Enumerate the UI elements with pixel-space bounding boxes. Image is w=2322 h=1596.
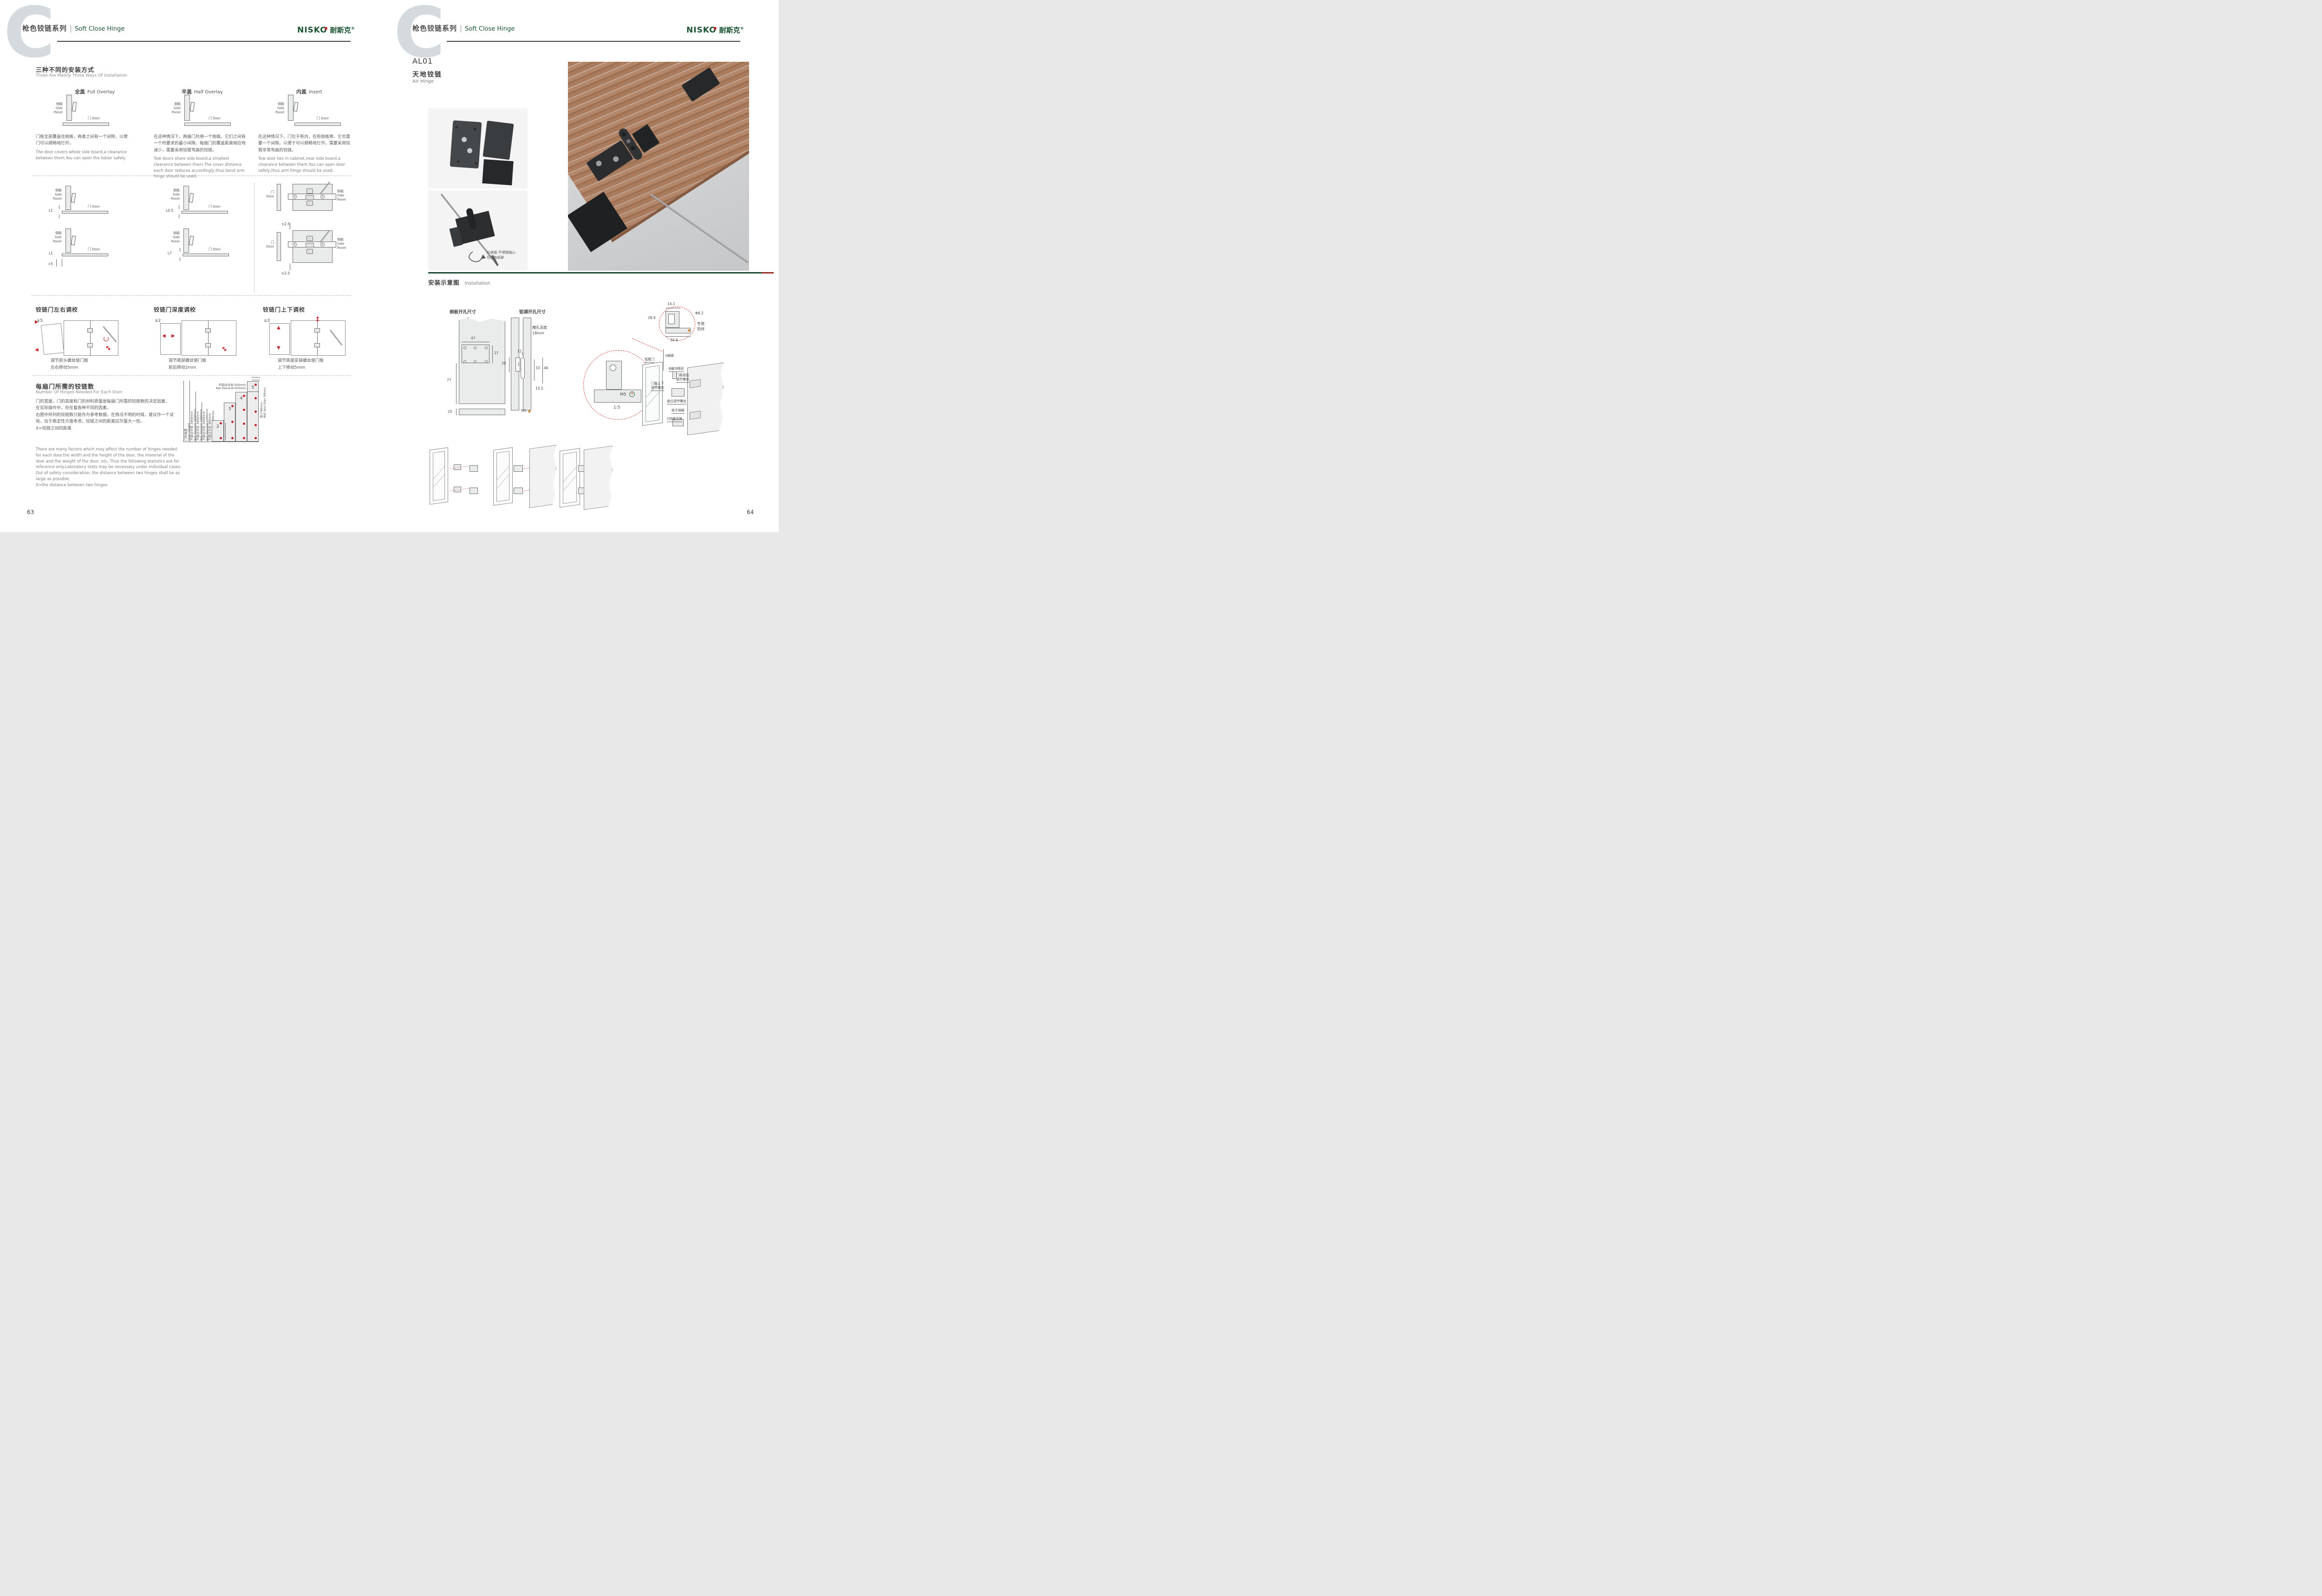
installation-title-cn: 安装示意图 (428, 279, 460, 286)
series-title-cn: 枪色铰链系列 (412, 24, 457, 33)
door-cn: 门 (209, 117, 212, 120)
hinge-count-desc-en: There are many factors which may affect … (36, 447, 183, 488)
label-text: B缓冲阻尼 (669, 367, 684, 371)
hinge-recess (690, 379, 701, 388)
brand-logo: NISKO耐斯克® (686, 25, 744, 35)
dim-tick (62, 259, 62, 267)
door-label: 门 Door (88, 205, 100, 209)
adjust-block-depth: 铰链门深度调校 ±2 ◀ ▶ ↔ 调节尾部螺丝使门板 前后移动2mm (154, 306, 263, 373)
alu-frame-door-shape (642, 362, 663, 426)
hinge-plate (87, 343, 93, 347)
side-panel-label: 侧板SidePanel (337, 189, 346, 202)
plate-hole (455, 126, 458, 129)
hinge-icon (71, 236, 76, 246)
adjust-caption-2: 左右移动5mm (51, 365, 78, 371)
door-frame (493, 447, 513, 506)
door-width-note: 不超过计划 600mm Not bevond 600mm (211, 384, 246, 390)
steel-rod (651, 195, 748, 262)
desc-en: The door covers whole side board,a clear… (36, 150, 129, 162)
way-name-cn: 全盖 (75, 89, 85, 95)
side-panel-shape (183, 186, 189, 210)
label-cover-screw: 盖位调节螺丝 (667, 399, 686, 404)
door-cn: 门 (317, 117, 320, 120)
door-en: Door (213, 248, 221, 251)
hinge-plate (205, 343, 211, 347)
dim-line (542, 358, 543, 384)
bar-value: 4 (240, 396, 243, 401)
desc-cn: 门板全部覆盖住侧板，两者之间有一个间隙，以便门可以顺畅地打开。 (36, 134, 129, 147)
rod-highlight (651, 194, 748, 262)
hinge-dot (243, 409, 245, 411)
dim-diagram-l7: 侧板SidePanel L7 门 Door (154, 228, 251, 275)
hinge-base-plate (450, 120, 482, 169)
dim-62: Φ6.2 (695, 311, 704, 315)
dim-tick (59, 215, 59, 218)
cabinet-divider (90, 321, 91, 355)
dashed-connector (522, 468, 529, 469)
arrow-left-icon: ◀ (35, 347, 39, 352)
offset-dim-plus: +5 (48, 262, 53, 266)
plate-tab (307, 201, 313, 206)
hinge-dot (254, 384, 257, 386)
label-text: 盖位调节螺丝 (667, 399, 686, 404)
bar-value: 2 (216, 424, 219, 429)
cabinet-shape (64, 320, 118, 356)
desc-cn-line: 门的宽度，门的高度和门的材料质量是每扇门所需的铰链数的决定因素。 (36, 398, 181, 405)
label-cabinet-side: 柜子侧板 (672, 409, 685, 414)
plate-slot (306, 195, 314, 200)
rod-overlay (568, 62, 749, 271)
green-divider (428, 272, 774, 274)
label-damper: B缓冲阻尼 (669, 367, 684, 372)
side-panel-label: 侧板 Side Panel (269, 102, 284, 114)
crosshair-icon: + (629, 391, 635, 397)
profile-hole (610, 365, 616, 371)
dim-diagram-l1: 侧板SidePanel L1 门 Door (36, 186, 133, 225)
hinge-icon (189, 236, 194, 246)
vertical-arrow-icon: ↕ (315, 316, 320, 323)
door-label: 门Door (263, 241, 274, 249)
dim-arrow (462, 342, 489, 342)
bar-4-hinges: 4 (235, 392, 247, 442)
chrome-screw-icon (467, 148, 472, 153)
label-front-back-screw: 门板前后 调节螺丝 (676, 373, 689, 383)
product-photo-installed (568, 62, 749, 271)
watermark-letter: C (4, 0, 55, 68)
arrow-down-icon: ▼ (277, 345, 280, 351)
desc-en-line: X=the distance between two hinges (36, 482, 183, 489)
adjust-caption-1: 调节底座安装螺丝使门板 (278, 358, 324, 364)
door-cn: 门 (88, 205, 91, 208)
ways-title-cn: 三种不同的安装方式 (36, 65, 94, 74)
column-divider (254, 183, 254, 293)
hinge-count-chart: 门的高度 Door height 不超过计划 2400mm Not bevond… (182, 376, 265, 447)
section-divider (32, 375, 351, 376)
side-panel-shape (66, 95, 72, 121)
hinge-count-title-en: Number Of Hinges Needed For Each Door (36, 390, 123, 395)
slot-note-line2: 18mm (532, 331, 547, 336)
hinge-dot (220, 422, 222, 424)
hinge-recess (690, 410, 701, 419)
hinge-dot (243, 395, 245, 397)
door-label: 门 Door (317, 117, 329, 121)
dim-tick (179, 215, 179, 218)
hinge-part (470, 465, 478, 472)
series-title-en: Soft Close Hinge (75, 26, 124, 33)
desc-cn: 在这种情况下，门位于柜内，在柜侧板旁。它也需要一个间隙。以便于可以顺畅地打开。需… (258, 134, 351, 154)
dashed-connector (522, 490, 529, 491)
bar-value: 3 (228, 407, 231, 411)
dim-tick (180, 257, 180, 261)
door-shape (160, 323, 181, 355)
dim-289: 28.9 (648, 316, 656, 320)
strip-shape (459, 409, 505, 415)
side-panel-shape (65, 228, 71, 253)
catalog-spread: C 枪色铰链系列|Soft Close Hinge NISKO耐斯克® 三种不同… (0, 0, 779, 532)
door-cn: 门 (209, 248, 212, 251)
door-en: Door (92, 248, 100, 251)
brand-logo: NISKO耐斯克® (297, 25, 355, 35)
desc-en: Tow door lies in cabinet,near side board… (258, 156, 351, 174)
cabinet-divider (208, 321, 209, 355)
dim-1: 1 (517, 362, 520, 366)
side-panel-cn: 侧板 (47, 231, 62, 235)
adjust-title: 铰链门左右调校 (36, 306, 78, 313)
plate-tab (307, 236, 313, 241)
door-shape (182, 211, 228, 214)
label-text: C铰链主体 (667, 417, 682, 421)
plate-diagram-top: 门Door + + 侧板SidePanel (263, 184, 351, 212)
registered-mark: ® (351, 26, 355, 31)
drill-hole (463, 360, 466, 363)
pin-shape (663, 349, 664, 371)
logo-cn: 耐斯克 (719, 26, 740, 34)
side-panel-en1: Side (47, 193, 62, 197)
way-column-insert: 内盖 Insert 侧板 Side Panel 门 Door (258, 86, 351, 129)
dim-line (492, 345, 493, 363)
door-en: Door (263, 245, 274, 249)
adjust-caption-2: 前后移动2mm (169, 365, 196, 371)
side-panel-en1: Side (165, 235, 180, 240)
assembly-step-3 (560, 445, 625, 515)
label-text: 柜子侧板 (672, 409, 685, 413)
door-label: 门 Door (209, 248, 221, 252)
logo-wordmark: NISKO (686, 26, 717, 35)
door-shape (183, 254, 229, 256)
door-label: 门Door (263, 190, 274, 199)
side-panel-cn: 侧板 (48, 102, 63, 106)
hinge-dot (231, 437, 234, 439)
side-panel-cn: 侧板 (47, 189, 62, 193)
side-panel-label: 侧板SidePanel (165, 189, 180, 201)
dim-m5: M5 (521, 409, 526, 413)
dim-27: 27 (494, 351, 499, 355)
adjust-title: 铰链门上下调校 (263, 306, 305, 313)
side-panel-en1: Side (337, 194, 346, 198)
side-panel-en1: Side (47, 235, 62, 240)
label-alu-frame-door: 铝框门 (645, 358, 654, 363)
edge-en: Not less than 90mm (263, 387, 267, 418)
door-cn: 门 (263, 241, 274, 245)
plate-tab (307, 249, 313, 254)
plate-hole (475, 162, 477, 165)
hinge-dot (254, 424, 257, 426)
side-panel-en1: Side (337, 242, 346, 246)
logo-wordmark: NISKO (297, 26, 327, 35)
drill-hole (485, 360, 488, 363)
label-pin: A插销 (665, 354, 674, 358)
series-title-cn: 枪色铰链系列 (22, 24, 67, 33)
side-panel-label: 侧板 Side Panel (48, 102, 63, 114)
way-name-cn: 半盖 (182, 89, 192, 95)
offset-dim: L1 (49, 208, 53, 213)
door-width-en: Not bevond 600mm (211, 387, 246, 390)
side-panel-label: 侧板SidePanel (165, 231, 180, 243)
adjust-caption-1: 调节尾部螺丝使门板 (169, 358, 206, 364)
alu-note: 专用 铝材 (697, 321, 704, 332)
hinge-icon (190, 102, 195, 112)
cabinet-divider (317, 321, 318, 355)
door-shape (41, 323, 64, 355)
product-name-en: Air Hinge (412, 79, 434, 84)
slot-note-line1: 槽孔深度 (532, 325, 547, 331)
offset-dim: L1 (49, 251, 53, 255)
door-label: 门 Door (209, 205, 221, 209)
door-shape (294, 123, 341, 126)
adjust-title: 铰链门深度调校 (154, 306, 196, 313)
hinge-dot (231, 421, 234, 423)
slot-depth-note: 槽孔深度 18mm (532, 325, 547, 336)
m5-label: M5 (620, 392, 626, 397)
page-number-right: 64 (747, 509, 754, 515)
pin-dot (688, 329, 690, 332)
side-panel-en2: Panel (337, 198, 346, 202)
logo-cn: 耐斯克 (330, 26, 351, 34)
label-text: 铝框门 (645, 358, 654, 362)
hinge-icon (294, 102, 299, 112)
side-panel-en2: Panel (48, 111, 63, 115)
desc-en-line: Out of safety consideration, the distanc… (36, 470, 183, 482)
door-label: 门 Door (209, 117, 221, 121)
dim-12: 12 (517, 349, 522, 353)
plate-tab (307, 189, 313, 194)
hinge-plate (87, 328, 93, 332)
plate-diagram-adjust: ±2.5 门Door + + 侧板SidePanel ±2.5 (263, 222, 351, 277)
tolerance-label: ±2 (264, 319, 270, 323)
label-text: A插销 (665, 354, 674, 358)
door-shape (63, 123, 109, 126)
dim-33: 33 (535, 366, 540, 370)
hinge-count-title-cn: 每扇门所需的铰链数 (36, 382, 94, 391)
assembly-step-1 (430, 445, 490, 515)
door-width-arrow (248, 391, 258, 392)
header-rule (447, 41, 740, 42)
dim-tick (179, 205, 179, 209)
exploded-diagram: 铝框门 A插销 B缓冲阻尼 门板前后 调节螺丝 门板上下 调节螺丝 盖位调节螺丝… (640, 349, 775, 442)
way-desc-full-overlay: 门板全部覆盖住侧板，两者之间有一个间隙，以便门可以顺畅地打开。 The door… (36, 134, 129, 161)
door-label: 门 Door (88, 248, 100, 252)
hinge-dot (243, 437, 245, 439)
side-panel-cn: 侧板 (337, 189, 346, 194)
door-en: Door (213, 205, 221, 208)
glass-pane (433, 451, 445, 501)
door-cn: 门 (88, 248, 91, 251)
offset-dim: L0.5 (166, 208, 173, 213)
side-panel-label: 侧板SidePanel (47, 189, 62, 201)
label-up-down-screw: 门板上下 调节螺丝 (651, 382, 664, 391)
side-panel-en1: Side (48, 106, 63, 111)
photo-note: 升级版·不锈钢轴心 可自由拆卸 (487, 250, 527, 261)
screw-icon: + (293, 242, 297, 247)
hinge-body-shape (672, 388, 685, 397)
cabinet-side-shape (687, 363, 724, 436)
arrow-right-icon: ▶ (35, 319, 39, 325)
adjust-block-ud: 铰链门上下调校 ±2 ▲ ▼ ↕ 调节底座安装螺丝使门板 上下移动5mm (263, 306, 372, 373)
ways-title-en: Three Are Mainly Three Ways Of Installat… (36, 73, 127, 78)
installation-title-en: Installation (465, 281, 490, 286)
hinge-part (470, 488, 478, 494)
glass-pane (646, 365, 659, 422)
door-en: Door (263, 195, 274, 199)
side-panel-label: 侧板SidePanel (337, 238, 346, 250)
dim-line (456, 363, 457, 404)
section-divider (32, 176, 351, 176)
arrow-right-icon: ▶ (171, 333, 175, 339)
alu-note-line1: 专用 (697, 321, 704, 326)
dim-tick (56, 259, 57, 267)
dim-141: 14.1 (667, 302, 675, 306)
hinge-count-desc-cn: 门的宽度，门的高度和门的材料质量是每扇门所需的铰链数的决定因素。 在实际操作中，… (36, 398, 181, 432)
product-name-cn: 天地铰链 (412, 70, 442, 79)
desc-cn-line: 右图中所列的铰链数只能作为参考数据，在情况不明的时候，建议作一个试验，出于稳定性… (36, 412, 181, 425)
header-divider: | (460, 24, 462, 33)
desc-cn-line: X=铰链之间的距离 (36, 425, 181, 432)
bar-2-hinges: 2 (212, 420, 224, 442)
dim-line (456, 409, 457, 415)
assembly-step-2 (493, 445, 558, 515)
dim-46: 46 (544, 366, 548, 370)
edge-tick (252, 380, 260, 380)
door-shape (277, 184, 281, 211)
dim-47: 47 (471, 336, 476, 340)
way-column-full-overlay: 全盖 Full Overlay 侧板 Side Panel 门 Door (36, 86, 133, 129)
plate-hole (474, 128, 476, 130)
page-header-left: 枪色铰链系列|Soft Close Hinge (22, 23, 124, 33)
side-panel-en1: Side (269, 106, 284, 111)
desc-cn-line: 在实际操作中，存在着各种不同的因素。 (36, 405, 181, 411)
way-name-en: Insert (309, 90, 322, 95)
way-heading: 全盖 Full Overlay (75, 86, 115, 95)
door-en: Door (92, 205, 100, 208)
hinge-plate (314, 343, 320, 347)
side-panel-cn: 侧板 (165, 231, 180, 235)
dim-tick (180, 248, 180, 252)
photo-note-line2: 可自由拆卸 (487, 255, 527, 260)
hinge-dot (220, 437, 222, 439)
side-panel-shape (183, 228, 189, 253)
way-desc-insert: 在这种情况下，门位于柜内，在柜侧板旁。它也需要一个间隙。以便于可以顺畅地打开。需… (258, 134, 351, 174)
drill-hole (474, 360, 476, 363)
label-text: 调节螺丝 (651, 386, 664, 390)
registered-mark: ® (740, 26, 744, 31)
x-distance-arrow (225, 423, 226, 440)
door-shape (62, 211, 108, 214)
way-heading: 半盖 Half Overlay (182, 86, 223, 95)
way-desc-half-overlay: 在这种情况下，两扇门共用一个侧板。它们之间有一个所要求的最小间隙。每扇门的覆盖距… (154, 134, 249, 180)
door-label: 门 Door (88, 117, 100, 121)
side-panel-shape (184, 95, 190, 121)
desc-en-line: There are many factors which may affect … (36, 447, 183, 470)
hinge-pad (482, 159, 513, 185)
product-photo-axis: 升级版·不锈钢轴心 可自由拆卸 (428, 190, 528, 271)
side-panel-cn: 侧板 (165, 189, 180, 193)
chrome-screw-icon (462, 137, 467, 142)
hinge-dot (243, 423, 245, 425)
adjust-block-lr: 铰链门左右调校 ±5 ▶ ◀ ↔ 调节前头螺丝使门板 左右移动5mm (36, 306, 145, 373)
chart-baseline (183, 442, 259, 442)
door-en: Door (321, 117, 329, 120)
slot-shape (521, 358, 525, 379)
door-cn: 门 (263, 190, 274, 195)
desc-cn: 在这种情况下，两扇门共用一个侧板。它们之间有一个所要求的最小间隙。每扇门的覆盖距… (154, 134, 249, 154)
side-panel-en2: Panel (47, 240, 62, 244)
dim-tick (59, 205, 59, 209)
way-column-half-overlay: 半盖 Half Overlay 侧板 Side Panel 门 Door (154, 86, 251, 129)
profile-base (665, 328, 691, 333)
curved-arrow-head (481, 254, 486, 259)
side-panel-en2: Panel (337, 246, 346, 250)
curved-arrow-icon (469, 252, 483, 262)
door-shape (62, 254, 108, 256)
side-panel-en2: Panel (47, 197, 62, 201)
m5-screw-icon (528, 410, 530, 413)
door-cn: 门 (88, 117, 91, 120)
door-shape (277, 232, 281, 261)
bar-5-hinges: 5 (247, 381, 259, 442)
arrow-up-icon: ▲ (277, 325, 280, 330)
adjust-caption-2: 上下移动5mm (278, 365, 305, 371)
way-name-en: Half Overlay (194, 90, 223, 95)
hinge-plate (205, 328, 211, 332)
series-title-en: Soft Close Hinge (465, 26, 515, 33)
hinge-dot (254, 437, 257, 439)
product-code: AL01 (412, 57, 433, 65)
dim-349: 34.9 (670, 338, 678, 342)
adjust-dim-bottom: ±2.5 (281, 271, 290, 275)
adjust-dim-top: ±2.5 (281, 222, 290, 226)
dim-20: 20 (502, 361, 506, 365)
alu-note-line2: 铝材 (697, 326, 704, 332)
divider-red-tail (762, 272, 774, 274)
door-frame (560, 448, 580, 508)
plate-slot (306, 243, 314, 248)
dim-diagram-l1-plus5: 侧板SidePanel L1 +5 门 Door (36, 228, 133, 275)
dim-77: 77 (447, 378, 451, 382)
hinge-icon (189, 193, 194, 203)
edge-note: 至少90mm Not less than 90mm (260, 387, 267, 418)
page-header-right: 枪色铰链系列|Soft Close Hinge (412, 23, 515, 33)
adjust-caption-1: 调节前头螺丝使门板 (51, 358, 88, 364)
glass-pane (563, 452, 577, 504)
tolerance-label: ±2 (155, 319, 161, 323)
dim-25: 25 (448, 410, 452, 414)
side-panel-label: 侧板 Side Panel (166, 102, 181, 114)
way-name-cn: 内盖 (296, 89, 307, 95)
side-panel-en1: Side (166, 106, 181, 111)
arrow-left-icon: ◀ (162, 333, 166, 339)
side-panel-en2: Panel (166, 111, 181, 115)
label-hinge-body: C铰链主体 (667, 417, 682, 422)
